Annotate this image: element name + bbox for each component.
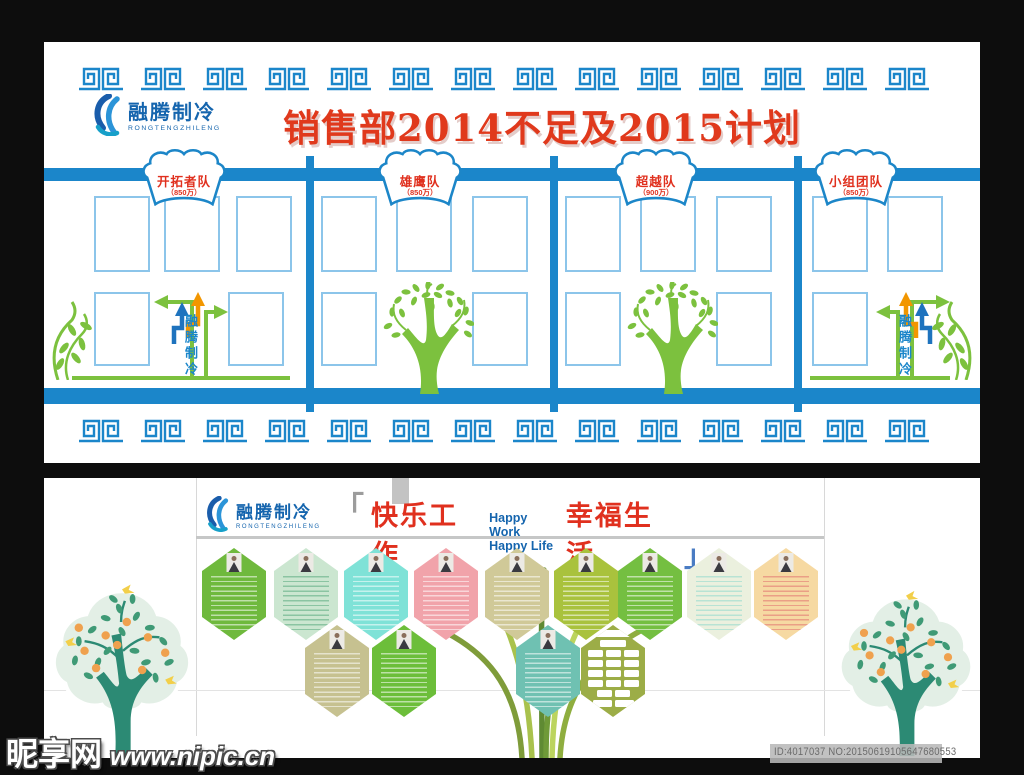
hex-text-lines	[627, 576, 673, 630]
team-label-eagles: 雄鹰队 （850万）	[374, 149, 466, 207]
org-chart-box	[588, 680, 603, 687]
employee-photo	[397, 630, 412, 649]
watermark-site-url: www.nipic.cn	[110, 741, 275, 772]
org-chart-box	[624, 650, 639, 657]
wall-edge-line	[196, 478, 197, 736]
photo-frame	[887, 196, 943, 272]
wall-edge-line	[824, 478, 825, 736]
blue-bar-bottom	[44, 388, 980, 404]
hex-text-lines	[763, 576, 809, 630]
bottom-poster: 融腾制冷 RONGTENGZHILENG 「 快乐工作 Happy Work H…	[44, 478, 980, 758]
hex-text-lines	[525, 653, 571, 707]
section-divider	[794, 156, 802, 412]
employee-photo	[439, 553, 454, 572]
employee-photo	[643, 553, 658, 572]
employee-hex-cell	[202, 548, 266, 640]
photo-frame	[94, 196, 150, 272]
photo-frame	[164, 196, 220, 272]
employee-photo	[712, 553, 727, 572]
photo-frame	[640, 196, 696, 272]
org-chart-box	[606, 660, 621, 667]
employee-photo	[330, 630, 345, 649]
org-chart-box	[624, 660, 639, 667]
green-tree-decoration	[382, 282, 474, 399]
org-chart-box	[606, 670, 621, 677]
org-chart-box	[606, 680, 621, 687]
hex-text-lines	[211, 576, 257, 630]
fruit-tree-decoration	[836, 584, 976, 769]
employee-photo	[299, 553, 314, 572]
org-chart-box	[588, 650, 603, 657]
greek-key-border-bottom	[68, 418, 956, 444]
team-label-pioneers: 开拓者队 （850万）	[138, 149, 230, 207]
org-chart-box	[588, 670, 603, 677]
hex-text-lines	[381, 653, 427, 707]
org-chart-box	[588, 660, 603, 667]
employee-photo	[779, 553, 794, 572]
photo-frame	[565, 196, 621, 272]
bracket-open: 「	[334, 494, 364, 524]
greek-key-border-top	[68, 66, 956, 92]
hex-text-lines	[314, 653, 360, 707]
photo-frame	[472, 292, 528, 366]
green-underline	[72, 376, 290, 380]
vertical-brand-text: 融腾制冷	[184, 314, 197, 378]
org-chart-box	[597, 690, 612, 697]
hex-text-lines	[353, 576, 399, 630]
org-chart-box	[600, 640, 626, 647]
brand-logo: 融腾制冷 RONGTENGZHILENG	[200, 496, 321, 537]
employee-photo	[579, 553, 594, 572]
photo-frame	[396, 196, 452, 272]
employee-photo	[541, 630, 556, 649]
image-id-text: ID:4017037 NO:20150619105647680553	[774, 746, 956, 758]
brand-name: 融腾制冷	[236, 504, 321, 521]
org-chart-box	[624, 680, 639, 687]
employee-hex-cell	[305, 625, 369, 717]
photo-frame	[812, 196, 868, 272]
stock-design-image: { "brand": { "name": "融腾制冷", "name_en": …	[0, 0, 1024, 774]
photo-frame	[236, 196, 292, 272]
vine-plant-decoration	[46, 300, 106, 385]
org-chart-box	[615, 690, 630, 697]
photo-frame	[812, 292, 868, 366]
employee-photo	[369, 553, 384, 572]
team-label-surpass: 超越队 （900万）	[610, 149, 702, 207]
photo-frame	[716, 292, 772, 366]
employee-hex-cell	[274, 548, 338, 640]
nipic-watermark: 昵享网 www.nipic.cn	[6, 729, 275, 775]
section-divider	[306, 156, 314, 412]
org-chart-box	[606, 650, 621, 657]
photo-frame	[565, 292, 621, 366]
green-underline	[810, 376, 950, 380]
green-tree-decoration	[626, 282, 718, 399]
photo-frame	[321, 196, 377, 272]
org-chart-box	[624, 670, 639, 677]
hex-text-lines	[423, 576, 469, 630]
brand-name-en: RONGTENGZHILENG	[236, 524, 321, 530]
photo-frame	[228, 292, 284, 366]
hex-text-lines	[283, 576, 329, 630]
hex-text-lines	[494, 576, 540, 630]
photo-frame	[321, 292, 377, 366]
watermark-site-name: 昵享网	[6, 729, 102, 775]
poster-title: 销售部2014不足及2015计划	[44, 98, 980, 152]
employee-photo	[227, 553, 242, 572]
photo-frame	[716, 196, 772, 272]
vine-plant-decoration	[918, 300, 978, 385]
team-label-group: 小组团队 （850万）	[810, 149, 902, 207]
hex-text-lines	[696, 576, 742, 630]
hex-text-lines	[563, 576, 609, 630]
brand-swirl-icon	[200, 496, 230, 537]
employee-photo	[510, 553, 525, 572]
photo-frame	[472, 196, 528, 272]
top-poster: 融腾制冷 RONGTENGZHILENG 销售部2014不足及2015计划 开拓…	[44, 42, 980, 463]
employee-hex-cell	[754, 548, 818, 640]
vertical-brand-text: 融腾制冷	[898, 314, 911, 378]
section-divider	[550, 156, 558, 412]
